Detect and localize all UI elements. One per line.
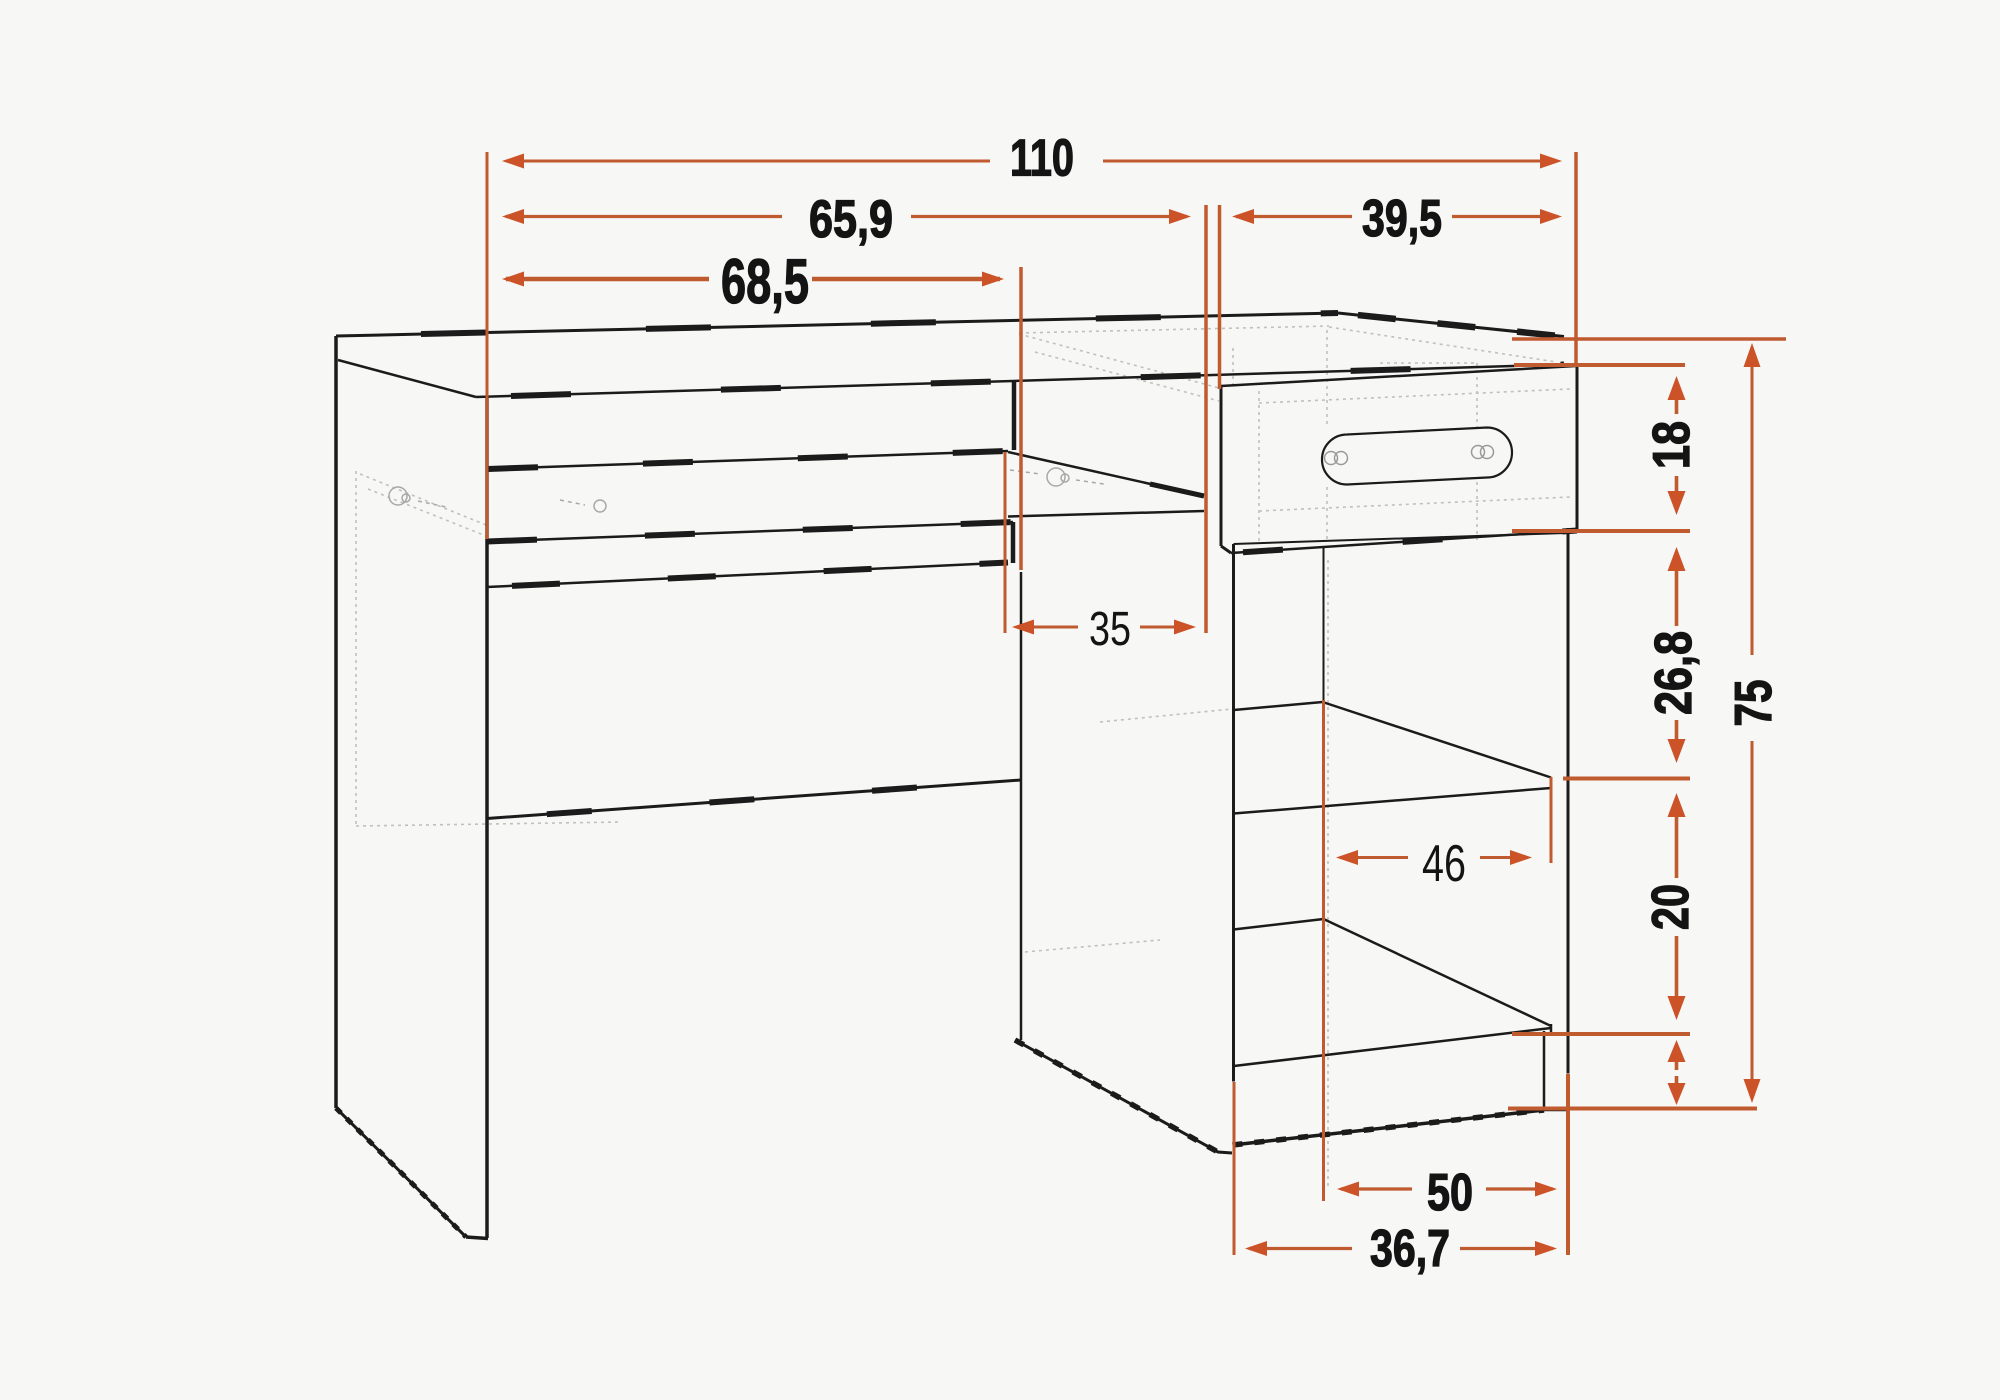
- svg-text:20: 20: [1642, 884, 1700, 930]
- svg-text:110: 110: [1010, 130, 1074, 188]
- svg-text:65,9: 65,9: [809, 190, 893, 249]
- svg-text:75: 75: [1725, 680, 1783, 727]
- svg-text:26,8: 26,8: [1645, 631, 1703, 715]
- svg-text:36,7: 36,7: [1370, 1220, 1450, 1278]
- svg-text:46: 46: [1422, 835, 1466, 893]
- svg-text:50: 50: [1427, 1164, 1473, 1222]
- svg-text:68,5: 68,5: [721, 247, 809, 317]
- svg-text:35: 35: [1089, 603, 1131, 656]
- svg-text:39,5: 39,5: [1362, 190, 1442, 248]
- svg-text:18: 18: [1643, 421, 1701, 469]
